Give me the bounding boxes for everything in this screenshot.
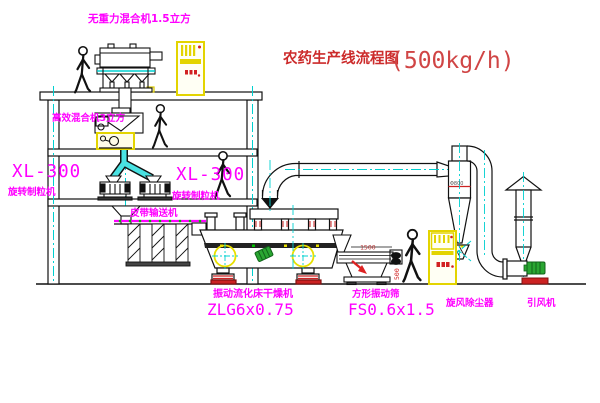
label-granulator-mid-name: 旋转制粒机 [171, 190, 220, 202]
indicator-dot [198, 46, 201, 49]
roof-slab [40, 92, 262, 100]
fan-motor [524, 262, 545, 274]
label-sieve-model: FS0.6x1.5 [348, 300, 435, 319]
label-belt-conveyor: 皮带输送机 [129, 207, 178, 219]
gravity-free-mixer [95, 44, 162, 92]
induced-draft-fan [507, 261, 548, 284]
granulator-mid [138, 176, 172, 200]
conveyor-supports [126, 224, 190, 266]
label-cyclone: 旋风除尘器 [445, 297, 494, 309]
label-dryer-model: ZLG6x0.75 [207, 300, 294, 319]
production-line-drawing: Φ800 [0, 0, 600, 403]
label-mixer-2f: 高效混合机3立方 [52, 112, 126, 124]
label-fan: 引风机 [527, 297, 556, 309]
label-mixer-top: 无重力混合机1.5立方 [87, 12, 191, 25]
label-granulator-left-name: 旋转制粒机 [7, 186, 56, 198]
diagram-capacity: (500kg/h) [390, 48, 515, 74]
label-sieve-name: 方形振动筛 [352, 288, 400, 300]
worker-figure-roof [75, 47, 90, 93]
sieve-length-dim: 1500 [360, 244, 376, 252]
sieve-height-dim: 500 [393, 268, 401, 280]
fluid-bed-dryer [200, 213, 343, 284]
vibrating-sieve [333, 235, 402, 285]
mixer-drive-box [97, 133, 134, 149]
label-granulator-mid-model: XL-300 [176, 165, 245, 185]
belt-conveyor [114, 220, 206, 266]
granulator-left [98, 176, 132, 200]
fan-base [522, 278, 548, 284]
cyclone-outlet-duct [467, 146, 507, 279]
diagram-title: 农药生产线流程图 [282, 49, 399, 67]
flow-diagram-canvas: Φ800 [0, 0, 600, 403]
label-dryer-name: 振动流化床干燥机 [213, 287, 293, 300]
worker-figure-2f [153, 105, 167, 148]
label-granulator-left-model: XL-300 [12, 162, 81, 182]
cyclone-dim-label: Φ800 [450, 181, 463, 187]
worker-figure-ground [403, 230, 420, 282]
indicator-dot [450, 236, 453, 239]
stub-gaskets [256, 221, 335, 227]
control-cabinet-bottom [429, 231, 456, 284]
control-cabinet-top [177, 42, 204, 95]
header-stubs [255, 219, 337, 230]
